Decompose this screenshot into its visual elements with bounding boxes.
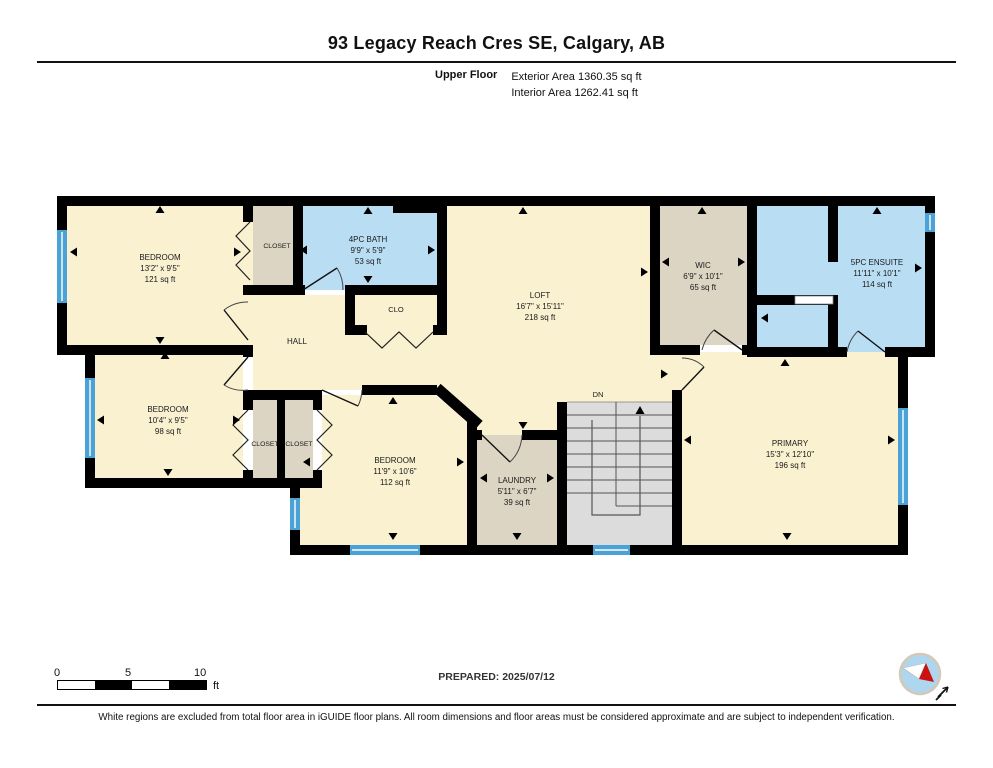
room-stairs [567,402,672,545]
svg-text:196 sq ft: 196 sq ft [775,461,806,470]
label-bath: 4PC BATH [349,235,388,244]
label-closet-1: CLOSET [263,243,290,250]
label-hall: HALL [287,337,308,346]
svg-text:10'4" x 9'5": 10'4" x 9'5" [148,416,188,425]
label-wic: WIC [695,261,711,270]
prepared-date: PREPARED: 2025/07/12 [0,671,993,683]
svg-text:11'11" x 10'1": 11'11" x 10'1" [853,269,900,278]
window [350,545,420,555]
label-laundry: LAUNDRY [498,476,537,485]
window [925,213,935,232]
svg-text:121 sq ft: 121 sq ft [145,275,176,284]
label-clo: CLO [388,305,404,314]
room-closet-2 [253,400,277,478]
label-bedroom-1: BEDROOM [139,253,181,262]
svg-text:98 sq ft: 98 sq ft [155,427,182,436]
label-closet-2: CLOSET [251,441,278,448]
pocket-door [795,296,833,304]
room-bedroom-2 [95,350,243,478]
north-arrow [936,687,948,700]
label-closet-3: CLOSET [285,441,312,448]
disclaimer-text: White regions are excluded from total fl… [0,712,993,723]
svg-text:5'11" x 6'7": 5'11" x 6'7" [498,487,537,496]
svg-text:39 sq ft: 39 sq ft [504,498,531,507]
svg-text:53 sq ft: 53 sq ft [355,257,382,266]
footer-divider [37,704,956,706]
label-stairs-dn: DN [593,390,604,399]
compass-icon [892,648,956,706]
label-primary: PRIMARY [772,439,809,448]
room-closet-3 [285,400,313,478]
svg-text:13'2" x 9'5": 13'2" x 9'5" [140,264,180,273]
label-bedroom-3: BEDROOM [374,456,416,465]
label-bedroom-2: BEDROOM [147,405,189,414]
window [57,230,67,303]
window [85,378,95,458]
room-primary [677,352,898,545]
room-fills [62,201,925,545]
svg-text:65 sq ft: 65 sq ft [690,283,717,292]
window [290,498,300,530]
window [898,408,908,505]
svg-text:11'9" x 10'6": 11'9" x 10'6" [373,467,416,476]
window [593,545,630,555]
svg-text:114 sq ft: 114 sq ft [862,280,893,289]
svg-text:16'7" x 15'11": 16'7" x 15'11" [516,302,564,311]
svg-text:112 sq ft: 112 sq ft [380,478,411,487]
label-ensuite: 5PC ENSUITE [851,258,903,267]
svg-text:6'9" x 10'1": 6'9" x 10'1" [683,272,723,281]
floor-plan-drawing: BEDROOM 13'2" x 9'5" 121 sq ft CLOSET 4P… [0,0,993,768]
label-loft: LOFT [530,291,551,300]
svg-text:218 sq ft: 218 sq ft [525,313,556,322]
floor-plan-page: 93 Legacy Reach Cres SE, Calgary, AB Upp… [0,0,993,768]
svg-text:15'3" x 12'10": 15'3" x 12'10" [766,450,814,459]
svg-text:9'9" x 5'9": 9'9" x 5'9" [351,246,386,255]
